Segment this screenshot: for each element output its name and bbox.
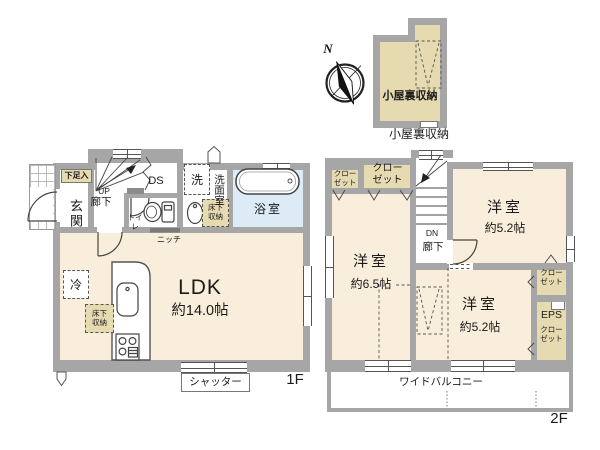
washer-box: 洗 <box>184 164 210 195</box>
fridge-label: 冷 <box>70 276 82 293</box>
closet-se-label: クロー ゼット <box>536 325 567 351</box>
floor-plan: 洗 床下 収納 冷 床下 収納 下足入 玄関 UP 廊下 DS トイレ 洗面室 … <box>0 0 600 450</box>
attic-floor <box>415 25 440 121</box>
wall <box>531 295 573 302</box>
f1-bathroom-floor <box>233 170 303 227</box>
window <box>365 360 411 372</box>
window <box>113 149 141 159</box>
hallway-2f-label: 廊下 <box>416 241 450 254</box>
window <box>325 236 334 298</box>
floor1-label: 1F <box>280 371 310 388</box>
washer-label: 洗 <box>191 171 203 188</box>
bathroom-label: 浴室 <box>233 202 303 217</box>
window <box>181 362 247 373</box>
closet-nw-large-label: クロー ゼット <box>364 163 411 189</box>
toilet-label: トイレ <box>124 214 146 223</box>
window <box>419 150 443 160</box>
room-ne-size-label: 約5.2帖 <box>473 221 537 235</box>
window <box>566 236 575 262</box>
ldk-name-label: LDK <box>150 276 250 300</box>
hallway-1f-label: 廊下 <box>86 196 116 208</box>
closet-ne-label: クロー ゼット <box>536 268 567 294</box>
floor2-label: 2F <box>544 410 574 427</box>
balcony-label: ワイドバルコニー <box>381 376 501 389</box>
ldk-size-label: 約14.0帖 <box>150 303 250 319</box>
window <box>303 266 312 326</box>
fridge-box: 冷 <box>63 270 89 299</box>
compass-north-label: N <box>318 41 338 55</box>
attic-caption-label: 小屋裏収納 <box>383 127 455 141</box>
niche-label: ニッチ <box>152 235 186 245</box>
entrance-label: 玄関 <box>64 188 82 240</box>
attic-room-label: 小屋裏収納 <box>376 90 444 104</box>
window <box>263 163 290 172</box>
eps-label: EPS <box>537 309 566 321</box>
room-se-size-label: 約5.2帖 <box>448 320 512 334</box>
room-se-name-label: 洋室 <box>448 296 512 314</box>
compass-icon <box>327 59 364 107</box>
up-label: UP <box>94 186 114 196</box>
underfloor-storage-box-2: 床下 収納 <box>85 304 114 333</box>
room-w-size-label: 約6.5帖 <box>337 277 405 291</box>
underfloor-storage-label-2: 床下 収納 <box>92 310 107 328</box>
window <box>483 162 533 171</box>
window <box>451 360 515 372</box>
room-ne-name-label: 洋室 <box>473 199 537 217</box>
porch-door-zone <box>30 187 53 222</box>
down-label: DN <box>417 228 447 238</box>
washroom-label: 洗面室 <box>209 165 224 215</box>
f2-room-se-floor <box>416 270 531 360</box>
shoe-storage-label: 下足入 <box>61 169 92 183</box>
ldk-door-opening <box>97 227 122 233</box>
shutter-label: シャッター <box>181 373 250 392</box>
duct-space-label: DS <box>142 175 170 188</box>
f2-se-opening <box>449 263 473 270</box>
wall <box>124 193 183 198</box>
closet-nw-small-label: クロー ゼット <box>331 169 359 189</box>
room-w-name-label: 洋室 <box>339 253 403 271</box>
